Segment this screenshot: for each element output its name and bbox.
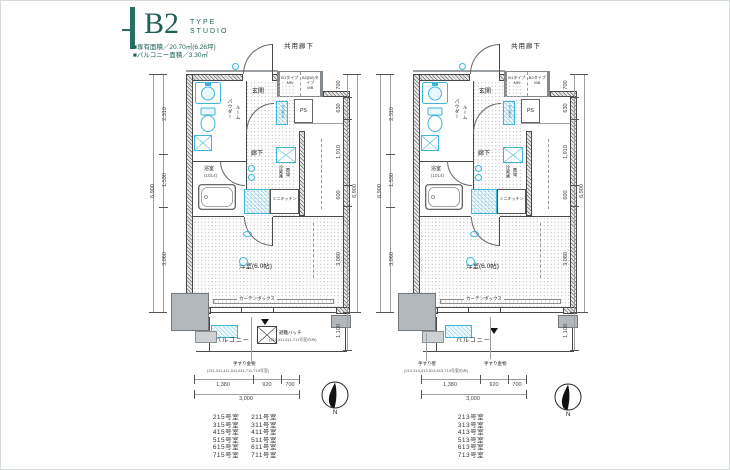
- dimension-label: 1,100: [564, 313, 572, 349]
- balcony-edge: [423, 351, 574, 352]
- bathtub-icon: [425, 184, 463, 210]
- keyed-note-marker: [459, 63, 466, 70]
- dimension-label: 600: [337, 177, 345, 213]
- dimension-line: [574, 74, 575, 350]
- handrail-note-rooms: (213,313,413,513,613,713号室のみ): [404, 369, 468, 373]
- room-number: 415号室: [208, 430, 244, 437]
- room-number: 711号室: [246, 453, 282, 460]
- partition-wall: [246, 81, 247, 189]
- washer-space: [421, 135, 439, 151]
- toilet-icon: [424, 107, 446, 133]
- fridge-space-label: 冷蔵庫 置場: [278, 165, 294, 191]
- handrail-note-rooms: (211,311,411,511,611,711,715号室): [207, 369, 269, 373]
- dimension-label: 700: [270, 383, 310, 389]
- toilet-icon: [197, 107, 219, 133]
- mb2-label: MB: [307, 85, 313, 90]
- shoe-cabinet: 下足入: [276, 101, 288, 125]
- unit-type-code: B2: [144, 9, 179, 39]
- dimension-label: 1,530: [163, 162, 171, 198]
- wall-segment: [526, 131, 532, 216]
- room-number: 615号室: [208, 445, 244, 452]
- north-compass: N: [550, 381, 586, 417]
- dimension-tick: [343, 350, 352, 351]
- dimension-tick: [149, 312, 167, 313]
- balcony-label: バルコニー: [456, 338, 491, 344]
- leader-line: [251, 317, 252, 361]
- curtain-box-label: カーテンボックス: [464, 297, 504, 302]
- dimension-line: [194, 394, 299, 395]
- bathroom-label: 浴室: [204, 167, 214, 172]
- partition-wall: [500, 216, 570, 217]
- dimension-tick: [159, 154, 168, 155]
- partition-wall: [193, 216, 244, 217]
- dimension-line: [194, 379, 299, 380]
- entrance-door-arc: [243, 44, 273, 74]
- ceiling-light-symbol: [470, 231, 479, 237]
- water-heater-space: [503, 147, 523, 163]
- washbasin-icon: [422, 82, 448, 104]
- dimension-tick: [570, 350, 579, 351]
- bathroom-door-arc: [447, 161, 472, 186]
- mb2-type: B2(B0)タイプ: [302, 75, 318, 85]
- hatch-marker-triangle: [490, 328, 498, 334]
- keyed-note-marker: [232, 63, 239, 70]
- common-corridor-label: 共用廊下: [511, 44, 541, 51]
- pipe-space-label: PS: [300, 108, 307, 114]
- dimension-tick: [194, 375, 195, 384]
- floor-plan-left: 共用廊下 B1タイプMB B2(B0)タイプMB 玄関 下足入 PS: [151, 41, 366, 466]
- dimension-label: 700: [497, 383, 537, 389]
- dimension-label: 3,060: [163, 241, 171, 277]
- dimension-label: 1,380: [203, 383, 243, 389]
- kitchen-label: ミニキッチン: [273, 196, 297, 201]
- dimension-label: 3,060: [390, 241, 398, 277]
- title-accent-bar: [130, 7, 135, 49]
- kitchen-sink-counter: [471, 189, 497, 214]
- water-heater-space: [276, 147, 296, 163]
- room-number: 413号室: [453, 430, 489, 437]
- floorplan-sheet: B2 TYPE STUDIO ■専有面積／20.70㎡(6.26坪) ■バルコニ…: [0, 0, 730, 470]
- wall-segment: [413, 74, 420, 313]
- structure-pillar: [171, 293, 209, 331]
- structure-step: [195, 331, 217, 343]
- entrance-door-arc: [470, 44, 500, 74]
- kitchen-sink-counter: [244, 189, 270, 214]
- dimension-tick: [149, 74, 167, 75]
- fridge-space-label: 冷蔵庫 置場: [505, 165, 521, 191]
- curtain-box-label: カーテンボックス: [237, 297, 277, 302]
- bathroom-door-arc: [220, 161, 245, 186]
- dimension-tick: [159, 207, 168, 208]
- dimension-tick: [570, 312, 588, 313]
- room-number: 613号室: [453, 445, 489, 452]
- shoe-cabinet: 下足入: [503, 101, 515, 125]
- dimension-label: 2,310: [390, 96, 398, 132]
- unit-type-word2: STUDIO: [190, 28, 228, 35]
- title-accent-tick: [122, 29, 135, 31]
- floor-plan-right: 共用廊下 B1タイプMB B2タイプMB 玄関 下足入 PS パウダー ルーム: [378, 41, 593, 466]
- window-mullion: [273, 307, 274, 313]
- unit-type-word1: TYPE: [190, 19, 216, 26]
- dimension-tick: [526, 390, 527, 399]
- washbasin-icon: [195, 82, 221, 104]
- dimension-label: 630: [564, 90, 572, 126]
- keyed-note-marker: [248, 174, 255, 181]
- balcony-label: バルコニー: [215, 338, 250, 344]
- dimension-label: 1,910: [337, 134, 345, 170]
- dimension-label: 3,080: [564, 241, 572, 277]
- dimension-label: 3,000: [453, 397, 493, 403]
- entrance-door-leaf: [499, 44, 500, 74]
- room-door-leaf: [499, 217, 500, 246]
- dimension-line: [421, 379, 526, 380]
- room-number: 411号室: [246, 430, 282, 437]
- shoe-cabinet-label: 下足入: [280, 105, 286, 119]
- dimension-line: [347, 74, 348, 350]
- ceiling-light-symbol: [243, 231, 252, 237]
- common-corridor-label: 共用廊下: [284, 44, 314, 51]
- dimension-label: 6,900: [353, 173, 361, 209]
- handrail-note-label: 手すり金物: [484, 362, 507, 367]
- beam-dashed-line: [321, 139, 323, 209]
- dimension-label: 1,530: [390, 162, 398, 198]
- pipe-space: PS: [521, 99, 540, 123]
- beam-dashed-line: [548, 139, 550, 209]
- room-number: 215号室: [208, 415, 244, 422]
- bathtub-icon: [198, 184, 236, 210]
- dimension-tick: [376, 312, 394, 313]
- mb2-label: MB: [534, 80, 540, 85]
- leader-line: [426, 333, 427, 361]
- room-number: 713号室: [453, 453, 489, 460]
- evacuation-hatch-note: (211,411,611,711号室のみ): [269, 338, 317, 342]
- dimension-tick: [343, 74, 361, 75]
- dimension-label: 6,900: [580, 173, 588, 209]
- north-label: N: [566, 412, 570, 417]
- powder-room-label: パウダー ルーム: [227, 99, 245, 147]
- bathroom-size-label: (1014): [204, 174, 217, 179]
- dimension-label: 6,900: [378, 173, 386, 209]
- dimension-tick: [343, 312, 361, 313]
- wall-segment: [186, 74, 193, 313]
- leader-line: [490, 317, 491, 359]
- north-label: N: [333, 410, 337, 415]
- handrail-note-label: 手すり金物: [233, 362, 256, 367]
- dimension-tick: [421, 375, 422, 384]
- partition-wall: [420, 216, 471, 217]
- dimension-tick: [570, 74, 588, 75]
- dimension-label: 2,310: [163, 96, 171, 132]
- window-mullion: [500, 307, 501, 313]
- powder-room-label: パウダー ルーム: [454, 99, 472, 147]
- keyed-note-marker: [248, 165, 255, 172]
- kitchen-label: ミニキッチン: [500, 196, 524, 201]
- dimension-label: 1,910: [564, 134, 572, 170]
- washer-space: [194, 135, 212, 151]
- dimension-tick: [386, 207, 395, 208]
- room-number: 213号室: [453, 415, 489, 422]
- wall-segment: [186, 74, 243, 81]
- dimension-tick: [299, 390, 300, 399]
- bathroom-size-label: (1014): [431, 174, 444, 179]
- dimension-label: 3,000: [226, 397, 266, 403]
- partition-wall: [273, 216, 343, 217]
- beam-dashed-line: [313, 223, 315, 278]
- entrance-label: 玄関: [479, 89, 491, 95]
- wall-segment: [299, 131, 305, 216]
- pipe-space-label: PS: [527, 108, 534, 114]
- structure-pillar: [398, 293, 436, 331]
- dimension-tick: [376, 74, 394, 75]
- keyed-note-marker: [475, 165, 482, 172]
- kitchen-unit: ミニキッチン: [270, 189, 299, 214]
- shoe-cabinet-label: 下足入: [507, 105, 513, 119]
- handrail-wall-note-label: 手すり壁: [418, 362, 436, 367]
- dimension-tick: [194, 390, 195, 399]
- wall-segment: [413, 74, 470, 81]
- dimension-label: 1,100: [337, 313, 345, 349]
- pipe-space: PS: [294, 99, 313, 123]
- room-door-leaf: [272, 217, 273, 246]
- hallway-label: 廊下: [478, 151, 490, 157]
- evacuation-hatch-label: 避難ハッチ: [279, 331, 302, 336]
- room-number: 611号室: [246, 445, 282, 452]
- partition-wall: [473, 81, 474, 189]
- window-mullion: [468, 307, 469, 313]
- dimension-label: 3,080: [337, 241, 345, 277]
- ceiling-light-symbol: [239, 257, 248, 266]
- ac-outdoor-unit-space: [445, 325, 472, 338]
- window-mullion: [241, 307, 242, 313]
- hallway-label: 廊下: [251, 151, 263, 157]
- kitchen-unit: ミニキッチン: [497, 189, 526, 214]
- partition-line: [294, 123, 343, 124]
- hatch-marker-triangle: [261, 319, 269, 325]
- balcony-edge: [196, 351, 347, 352]
- keyed-note-marker: [475, 174, 482, 181]
- dimension-label: 1,380: [430, 383, 470, 389]
- dimension-line: [421, 394, 526, 395]
- partition-line: [521, 123, 570, 124]
- dimension-label: 630: [337, 90, 345, 126]
- bathroom-label: 浴室: [431, 167, 441, 172]
- dimension-tick: [421, 390, 422, 399]
- room-number: 211号室: [246, 415, 282, 422]
- room-number: 715号室: [208, 453, 244, 460]
- entrance-door-leaf: [272, 44, 273, 74]
- entrance-label: 玄関: [252, 89, 264, 95]
- dimension-label: 600: [564, 177, 572, 213]
- beam-dashed-line: [540, 223, 542, 278]
- dimension-tick: [386, 154, 395, 155]
- north-compass: N: [317, 379, 353, 415]
- ceiling-light-symbol: [466, 257, 475, 266]
- dimension-label: 6,900: [151, 173, 159, 209]
